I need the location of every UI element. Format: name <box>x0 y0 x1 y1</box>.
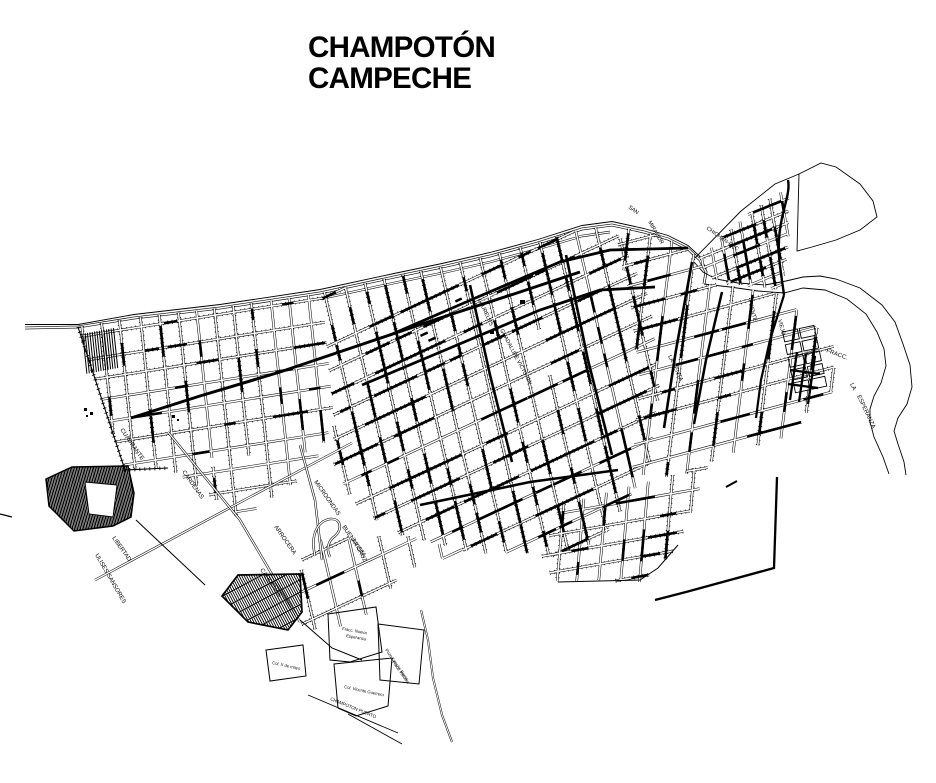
svg-text:VIEJO: VIEJO <box>776 319 786 337</box>
svg-text:ARROCERA: ARROCERA <box>272 525 296 556</box>
svg-text:PUENTE: PUENTE <box>746 299 758 322</box>
svg-text:Col. X de mayo: Col. X de mayo <box>272 660 302 671</box>
svg-text:LA: LA <box>848 382 857 391</box>
svg-text:FRACC.: FRACC. <box>825 348 848 361</box>
svg-text:LIBERTAD: LIBERTAD <box>110 536 132 564</box>
svg-text:CHAMPOTON PUERTO: CHAMPOTON PUERTO <box>330 696 378 719</box>
svg-text:SAN: SAN <box>627 205 640 216</box>
svg-text:Col. Vicente Guerrero: Col. Vicente Guerrero <box>344 684 385 697</box>
